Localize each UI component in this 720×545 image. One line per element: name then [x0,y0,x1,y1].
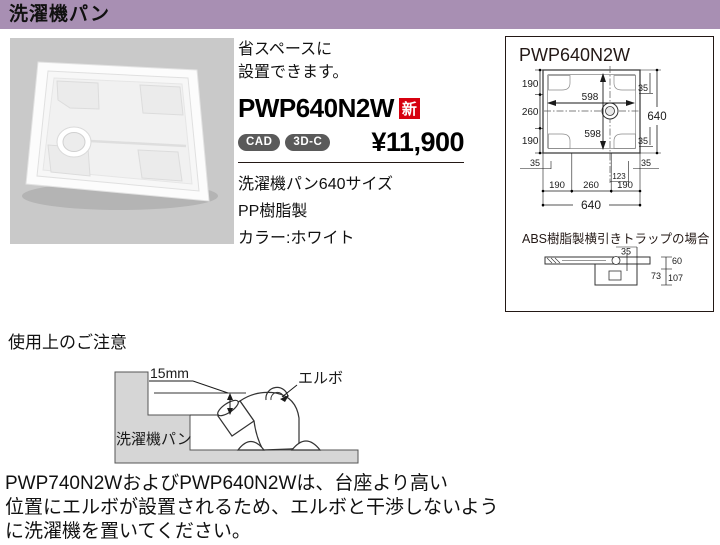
dim-bottom-640: 640 [581,198,601,212]
cad-badge: CAD [238,134,280,151]
dim-side-35: 35 [621,247,631,257]
dim-side-60: 60 [672,256,682,266]
pan-corner-pad [138,150,182,181]
dim-left-190-bottom: 190 [522,136,539,147]
page-title: 洗濯機パン [9,4,110,25]
notice-body: PWP740N2WおよびPWP640N2Wは、台座より高い 位置にエルボが設置さ… [5,472,510,544]
product-photo [10,38,234,244]
spec-list: 洗濯機パン640サイズ PP樹脂製 カラー:ホワイト [238,171,464,252]
dim-side-107: 107 [668,273,683,283]
product-code-row: PWP640N2W 新 [238,93,464,124]
dim-side-73: 73 [651,271,661,281]
notice-body-line3: に洗濯機を置いてください。 [5,520,510,544]
page-header: 洗濯機パン [0,0,720,29]
notice-body-line2: 位置にエルボが設置されるため、エルボと干渉しないよう [5,496,510,520]
dim-598-height: 598 [584,129,601,140]
dim-bottom-190-right: 190 [617,180,633,191]
spec-size: 洗濯機パン640サイズ [238,171,464,198]
tagline: 省スペースに 設置できます。 [238,38,464,84]
pan-outline [543,70,640,153]
dim-below-35-left: 35 [530,158,540,168]
pan-section-label: 洗濯機パン [116,431,192,448]
dim-below-35-right: 35 [641,158,651,168]
dim-right-640: 640 [647,111,666,123]
tech-drawing-panel: PWP640N2W 598 598 190 [505,36,714,312]
spec-color: カラー:ホワイト [238,225,464,252]
dim-left-260: 260 [522,107,539,118]
dim-bottom-260: 260 [583,180,599,191]
dim-left-190-top: 190 [522,79,539,90]
product-code: PWP640N2W [238,93,394,124]
tagline-line2: 設置できます。 [238,61,464,84]
3dc-badge: 3D-C [285,134,330,151]
price: ¥11,900 [371,127,464,158]
elbow-label: エルボ [298,370,343,387]
dim-right-35-bottom: 35 [638,136,648,146]
badge-price-row: CAD 3D-C ¥11,900 [238,127,464,158]
plan-view-drawing: 598 598 190 260 190 640 35 35 [506,65,713,227]
dim-15mm: 15mm [150,365,189,381]
tagline-line1: 省スペースに [238,38,464,61]
dim-bottom-190-left: 190 [549,180,565,191]
new-badge: 新 [399,98,420,119]
washing-machine-pan-photo [10,38,234,244]
spec-material: PP樹脂製 [238,198,464,225]
dim-right-35-top: 35 [638,83,648,93]
side-view-drawing: 35 60 73 107 [506,245,713,307]
divider-rule [238,162,464,163]
notice-body-line1: PWP740N2WおよびPWP640N2Wは、台座より高い [5,472,510,496]
product-info: 省スペースに 設置できます。 PWP640N2W 新 CAD 3D-C ¥11,… [238,38,464,252]
notice-diagram: 15mm エルボ 洗濯機パン [70,362,370,470]
tech-panel-title: PWP640N2W [519,45,630,66]
dim-598-width: 598 [582,92,599,103]
pan-corner-pad [140,85,183,115]
notice-heading: 使用上のご注意 [8,328,127,353]
